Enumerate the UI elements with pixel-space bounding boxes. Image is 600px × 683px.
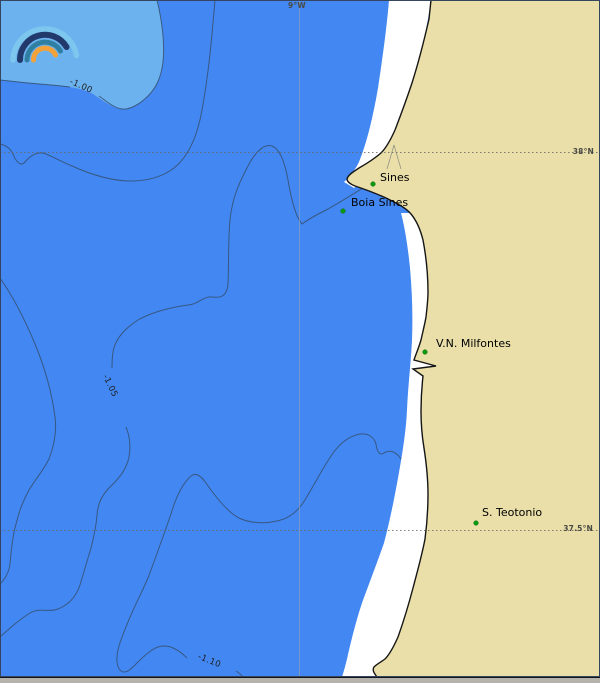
marker-boia-sines	[341, 209, 346, 214]
rainbow-arcs-logo	[6, 6, 88, 70]
bottom-frame-band	[0, 677, 600, 683]
map-canvas	[0, 0, 600, 677]
marker-s-teotonio	[474, 521, 479, 526]
marker-sines	[371, 182, 376, 187]
coastal-contour-map: 9°W 38°N 37.5°N -1.00 -1.05 -1.10 Sines …	[0, 0, 600, 683]
marker-vn-milfontes	[423, 350, 428, 355]
logo-arc-orange	[33, 48, 55, 60]
